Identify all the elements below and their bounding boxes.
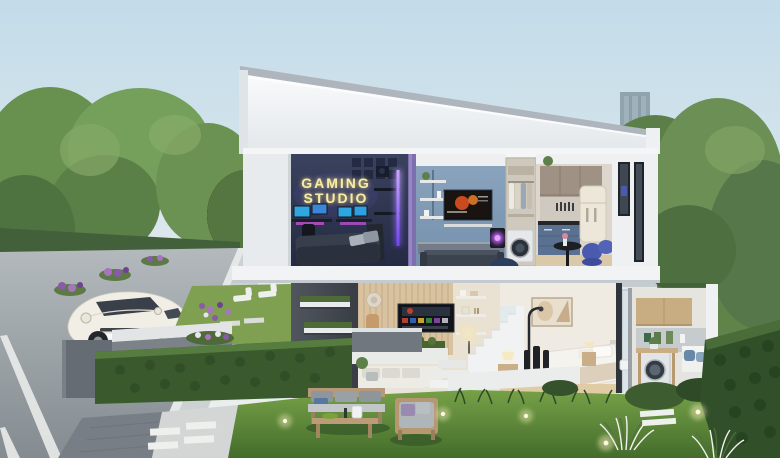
neon-sign-line1: GAMING bbox=[301, 175, 371, 191]
car-headlight bbox=[81, 313, 91, 323]
flowerbed bbox=[186, 331, 234, 345]
outdoor-armchair bbox=[390, 398, 442, 446]
glow-speaker bbox=[490, 228, 505, 248]
utility-cabinets bbox=[636, 298, 692, 326]
tv-lower bbox=[398, 304, 454, 332]
gaming-room: GAMING STUDIO GAMING STUDIO bbox=[291, 154, 409, 268]
tv-upper bbox=[444, 190, 492, 220]
artwork bbox=[532, 298, 572, 326]
fridge bbox=[580, 186, 606, 242]
media-room bbox=[416, 154, 506, 274]
facade-windows bbox=[612, 154, 658, 268]
led-strip bbox=[395, 170, 401, 246]
neon-sign: GAMING STUDIO GAMING STUDIO bbox=[301, 175, 371, 206]
washing-machine-upper bbox=[507, 230, 533, 262]
architectural-render-scene: GAMING STUDIO GAMING STUDIO bbox=[0, 0, 780, 458]
